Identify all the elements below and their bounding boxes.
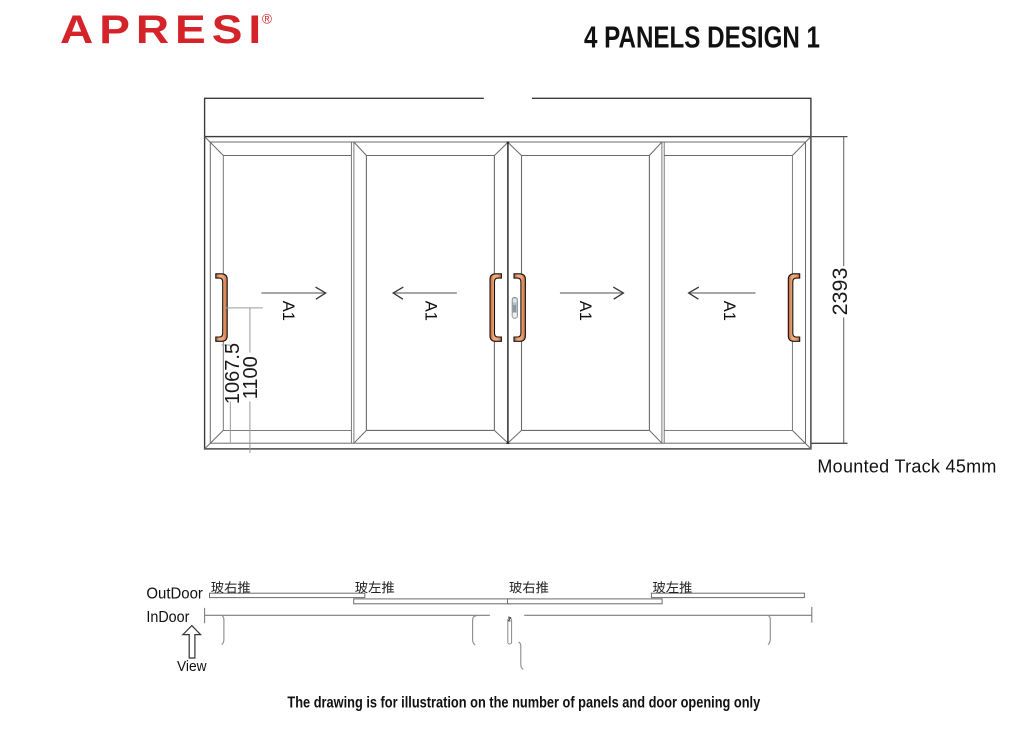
svg-text:Mounted Track 45mm: Mounted Track 45mm [817,456,996,476]
svg-text:2393: 2393 [828,268,852,316]
svg-text:View: View [177,658,207,675]
svg-text:4 PANELS DESIGN 1: 4 PANELS DESIGN 1 [584,20,820,55]
svg-text:A1: A1 [279,301,297,321]
svg-text:OutDoor: OutDoor [146,586,203,603]
svg-text:A1: A1 [720,301,738,321]
svg-text:InDoor: InDoor [146,609,189,626]
svg-text:®: ® [262,12,272,27]
svg-text:The drawing is for illustratio: The drawing is for illustration on the n… [287,694,760,711]
svg-text:APRESI: APRESI [60,8,267,53]
svg-text:A1: A1 [576,301,594,321]
svg-text:1100: 1100 [240,356,262,399]
svg-text:A1: A1 [421,301,439,321]
